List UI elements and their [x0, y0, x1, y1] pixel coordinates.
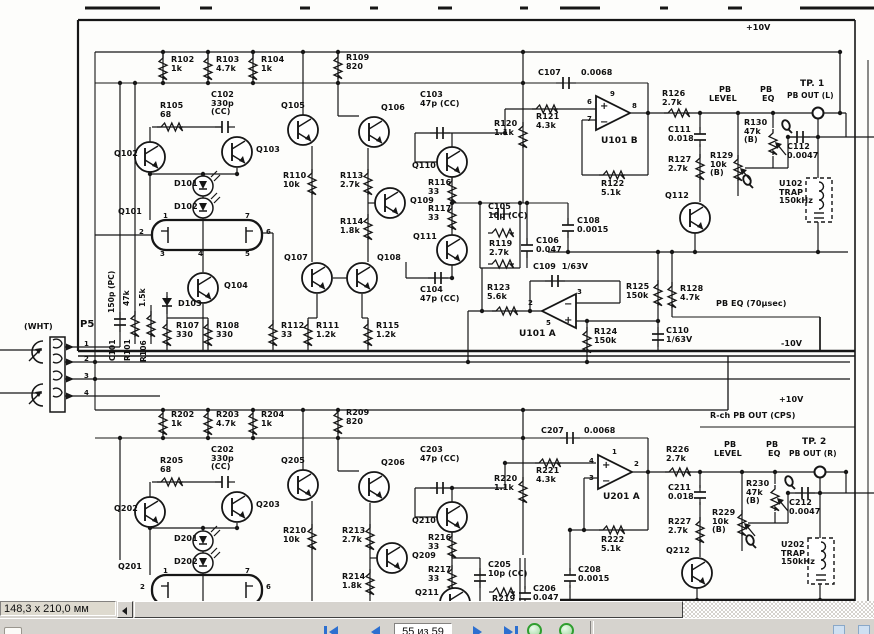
page-size-status: 148,3 x 210,0 мм [0, 601, 116, 616]
part-R209 [334, 408, 342, 434]
hscrollbar-track[interactable] [683, 601, 874, 618]
part-Q203 [222, 492, 252, 522]
part-D102 [193, 193, 220, 218]
previous-page-icon [371, 626, 380, 634]
part-R217 [448, 565, 456, 591]
part-C206 [519, 586, 531, 601]
hscrollbar-thumb[interactable] [134, 601, 683, 618]
part-R213 [366, 524, 374, 550]
svg-text:−: − [564, 299, 572, 310]
part-R202 [159, 409, 167, 435]
part-R113 [364, 169, 372, 195]
part-C208 [564, 568, 576, 588]
part-Q210 [437, 502, 467, 532]
part-ADJ1 [781, 119, 792, 133]
status-bar: 148,3 x 210,0 мм [0, 601, 874, 618]
part-U101A: −+ [542, 294, 576, 328]
svg-text:−: − [602, 476, 610, 487]
part-Q201 [152, 575, 262, 601]
part-R203 [204, 409, 212, 435]
part-R214 [366, 569, 374, 595]
first-page-icon [324, 626, 327, 634]
part-Q104 [188, 273, 218, 303]
part-R106 [147, 311, 155, 337]
toolbar-square-button-1[interactable] [833, 625, 845, 634]
part-R222 [599, 526, 625, 534]
part-C111 [694, 127, 706, 147]
part-U201A: +− [598, 455, 632, 489]
part-R220 [519, 477, 527, 503]
part-C102 [215, 121, 235, 133]
part-R210 [308, 524, 316, 550]
part-Q101 [152, 220, 262, 250]
part-R227 [696, 517, 704, 543]
part-U101B: +− [596, 96, 630, 130]
part-SH2 [29, 384, 43, 406]
part-R111 [304, 320, 312, 346]
part-R230 [771, 485, 788, 511]
green-circle-button-2[interactable] [559, 623, 574, 634]
part-C211 [694, 485, 706, 505]
left-arrow-icon [122, 607, 127, 615]
part-TP1 [813, 108, 824, 119]
part-R221 [535, 459, 561, 467]
part-R121 [532, 105, 558, 113]
previous-page-button[interactable] [362, 623, 388, 634]
part-SH1 [29, 341, 43, 363]
part-Q206 [359, 472, 389, 502]
part-Q108 [347, 263, 377, 293]
part-Q202 [135, 497, 165, 527]
green-circle-button-1[interactable] [527, 623, 542, 634]
part-R122 [599, 171, 625, 179]
part-R101 [131, 311, 139, 337]
part-R110 [308, 169, 316, 195]
last-page-button[interactable] [498, 623, 524, 634]
part-Q205 [288, 470, 318, 500]
next-page-icon [473, 626, 482, 634]
part-Q211 [440, 588, 470, 601]
part-R114 [364, 214, 372, 240]
bottom-toolbar: 55 из 59 [0, 618, 874, 634]
part-ADJ3 [784, 475, 795, 489]
part-R216 [448, 532, 456, 558]
first-page-button[interactable] [318, 623, 344, 634]
schematic-page: +−−++− R102 1kR103 4.7kR104 1kR109 820R1… [0, 0, 874, 601]
part-R118x [488, 229, 514, 237]
part-R117 [448, 204, 456, 230]
part-R107 [163, 320, 171, 346]
part-R105 [157, 123, 183, 131]
part-R125 [654, 280, 662, 306]
toolbar-mini-button[interactable] [4, 627, 22, 634]
part-R205 [157, 478, 183, 486]
part-R112 [269, 320, 277, 346]
part-R226 [665, 468, 691, 476]
part-R204 [249, 409, 257, 435]
viewer-window: +−−++− R102 1kR103 4.7kR104 1kR109 820R1… [0, 0, 874, 634]
part-R126 [664, 109, 690, 117]
part-R108 [204, 320, 212, 346]
part-Q212 [682, 558, 712, 588]
svg-text:+: + [564, 315, 572, 326]
part-R103 [204, 54, 212, 80]
part-D202 [193, 548, 220, 573]
part-R104 [249, 54, 257, 80]
schematic-canvas: +−−++− [0, 0, 874, 601]
toolbar-separator [590, 621, 594, 634]
part-Q102 [135, 142, 165, 172]
part-R127 [696, 154, 704, 180]
part-R102 [159, 54, 167, 80]
part-U102 [806, 178, 832, 222]
part-Q103 [222, 137, 252, 167]
part-Q209 [377, 543, 407, 573]
next-page-button[interactable] [464, 623, 490, 634]
part-R120 [519, 122, 527, 148]
page-indicator[interactable]: 55 из 59 [394, 623, 452, 634]
part-Q106 [359, 117, 389, 147]
part-R116 [448, 177, 456, 203]
part-Q112 [680, 203, 710, 233]
part-C105 [491, 208, 511, 220]
part-D103 [162, 292, 172, 314]
part-R130 [769, 129, 786, 155]
part-P5 [50, 337, 74, 412]
part-R109 [334, 53, 342, 79]
svg-text:−: − [600, 117, 608, 128]
part-R219 [489, 588, 515, 596]
part-Q107 [302, 263, 332, 293]
toolbar-square-button-2[interactable] [858, 625, 870, 634]
svg-text:+: + [602, 460, 610, 471]
part-R124 [583, 327, 591, 353]
part-D201 [193, 526, 220, 551]
part-C202 [215, 476, 235, 488]
part-R128 [668, 282, 676, 308]
part-R119 [488, 260, 514, 268]
hscroll-left-button[interactable] [117, 601, 133, 618]
last-page-icon [504, 626, 513, 634]
part-R123 [492, 307, 518, 315]
svg-text:+: + [600, 101, 608, 112]
part-Q105 [288, 115, 318, 145]
part-ADJ2 [742, 174, 753, 188]
part-Q109 [375, 188, 405, 218]
part-TP2 [815, 467, 826, 478]
part-Q111 [437, 235, 467, 265]
part-Q110 [437, 147, 467, 177]
part-U202 [808, 538, 834, 584]
part-D101 [193, 171, 220, 196]
part-C106 [521, 238, 533, 258]
part-R115 [364, 320, 372, 346]
part-C108 [562, 218, 574, 238]
